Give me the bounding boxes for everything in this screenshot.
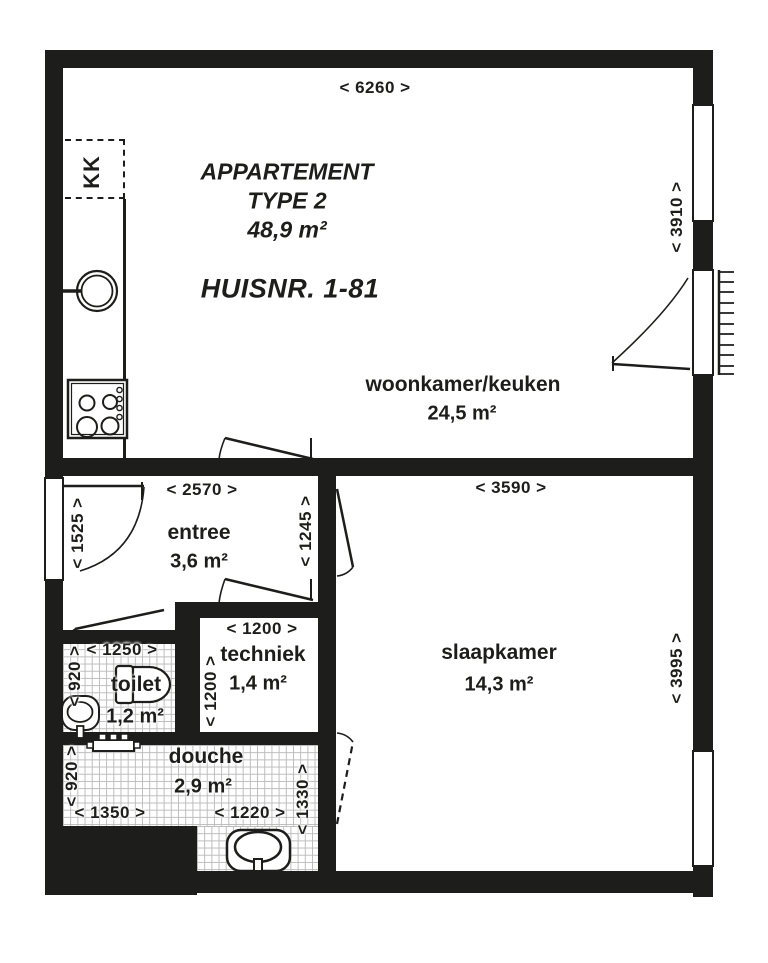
cooktop-icon [68,380,127,438]
floor-plan: APPARTEMENT TYPE 2 48,9 m² HUISNR. 1-81 … [0,0,768,963]
room-area-slaapkamer: 14,3 m² [465,674,534,697]
slaapkamer-door-swing [337,489,353,576]
douche-door-swing [337,733,353,824]
french-balcony-railing-icon [719,270,734,375]
dim-entree-width: < 2570 > [166,480,237,500]
room-area-entree: 3,6 m² [170,551,228,574]
front-door-opening [44,477,64,581]
room-area-woonkamer: 24,5 m² [428,403,497,426]
room-area-techniek: 1,4 m² [229,673,287,696]
wall-entree-slaapkamer [318,458,336,871]
wall-bottom [197,871,713,893]
dim-entree-right-height: < 1245 > [296,495,316,566]
techniek-door-swing [219,579,313,603]
room-name-toilet: toilet [111,673,161,697]
room-area-toilet: 1,2 m² [106,706,164,729]
balcony-door-opening [692,269,714,376]
plan-title-line-1: APPARTEMENT [201,159,374,186]
room-name-douche: douche [169,745,244,769]
room-name-woonkamer: woonkamer/keuken [366,373,561,397]
window-slaapkamer [692,750,714,867]
dim-douche-height: < 920 > [62,745,82,806]
house-number: HUISNR. 1-81 [201,274,380,305]
dim-douche-right-height: < 1330 > [293,763,313,834]
dim-techniek-height: < 1200 > [201,655,221,726]
dim-entree-left-height: < 1525 > [68,497,88,568]
wall-douche-top [45,732,336,745]
dim-woonkamer-height: < 3910 > [667,181,687,252]
plan-title-area: 48,9 m² [247,217,326,244]
wall-bottom-left-block [45,826,197,895]
dim-slaapkamer-width: < 3590 > [475,478,546,498]
dim-techniek-width: < 1200 > [226,619,297,639]
room-area-douche: 2,9 m² [174,776,232,799]
wall-techniek-left [175,602,200,745]
dim-douche-width-right: < 1220 > [214,803,285,823]
dim-overall-width: < 6260 > [339,78,410,98]
woonkamer-door-swing [219,438,313,459]
wall-top [45,50,713,68]
plan-title-line-2: TYPE 2 [247,188,326,215]
dim-toilet-width: < 1250 > [86,640,157,660]
window-woonkamer [692,104,714,222]
room-name-slaapkamer: slaapkamer [441,641,557,665]
kitchen-counter-edge [123,199,126,458]
dim-slaapkamer-height: < 3995 > [667,632,687,703]
balcony-door-swing [612,278,690,371]
room-name-techniek: techniek [220,643,305,667]
room-name-entree: entree [167,521,230,545]
kitchen-unit-label: KK [79,155,105,189]
dim-toilet-height: < 920 > [65,645,85,706]
wall-mid-horizontal [45,458,713,476]
dim-douche-width-left: < 1350 > [74,803,145,823]
